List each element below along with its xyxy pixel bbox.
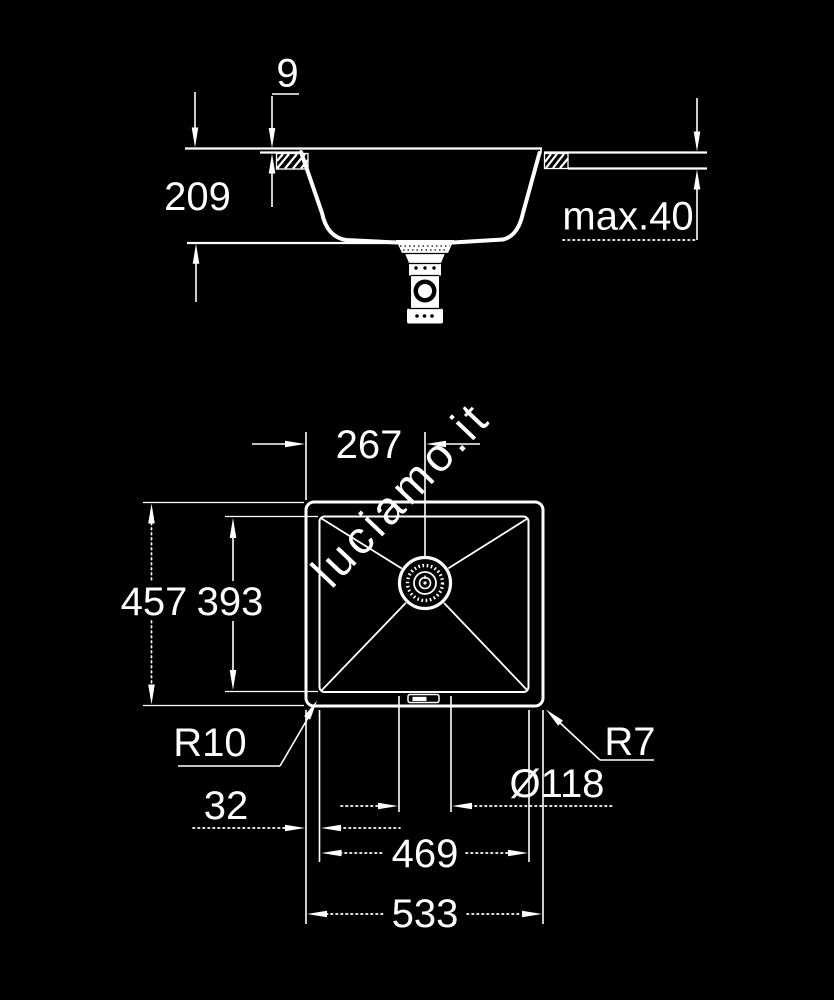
dim-label-drain-diameter: Ø118 [510, 762, 605, 806]
dim-label-outer-corner-radius: R7 [604, 720, 655, 764]
dim-label-countertop-max: max.40 [562, 195, 693, 239]
overflow-slot [408, 695, 439, 703]
dim-label-bowl-corner-radius: R10 [173, 721, 246, 765]
dim-label-outer-width: 533 [392, 892, 459, 936]
sink-dimension-drawing: luciamo.it [0, 0, 834, 1000]
dim-label-bowl-width: 469 [392, 832, 459, 876]
dim-label-bowl-length: 393 [197, 580, 264, 624]
technical-drawing-page: luciamo.it [0, 0, 834, 1000]
dim-label-drain-offset: 267 [336, 423, 403, 467]
dim-label-rim-thickness: 9 [276, 52, 298, 96]
dim-label-outer-length: 457 [121, 580, 188, 624]
drain-circle-icon [398, 556, 453, 611]
dim-label-bowl-depth: 209 [164, 175, 231, 219]
dim-label-edge-to-bowl: 32 [204, 784, 249, 828]
